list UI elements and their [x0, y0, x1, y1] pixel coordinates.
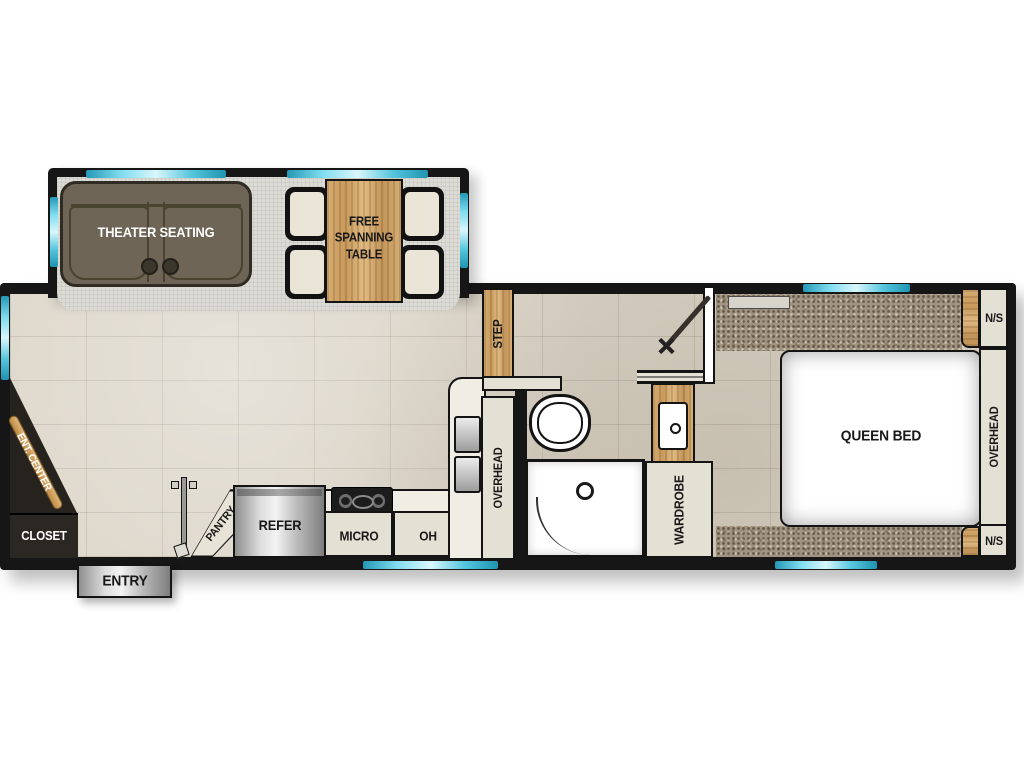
refer-label: REFER	[259, 517, 302, 533]
tv-pole-bracket-icon	[189, 481, 197, 489]
cupholder-icon	[162, 258, 179, 275]
sofa-seat-left	[69, 206, 149, 280]
entry-label: ENTRY	[102, 573, 147, 590]
cooktop-icon	[331, 487, 393, 513]
window-accent	[1, 296, 9, 380]
bedroom-overhead-label: OVERHEAD	[987, 406, 1001, 467]
dinette-bench	[400, 187, 444, 241]
window-accent	[460, 193, 468, 268]
window-accent	[803, 284, 910, 292]
bedroom-carpet-bottom	[716, 526, 962, 557]
bathroom-sink-icon	[658, 402, 688, 450]
window-accent	[86, 170, 226, 178]
dinette-bench	[400, 245, 444, 299]
nightstand-bottom-label: N/S	[985, 534, 1003, 548]
cupholder-icon	[141, 258, 158, 275]
kitchen-sink-icon	[454, 456, 481, 493]
nightstand-wood-trim	[961, 526, 980, 557]
oh-label: OH	[419, 529, 437, 544]
wardrobe-label: WARDROBE	[672, 475, 687, 545]
queen-bed-label: QUEEN BED	[841, 428, 921, 445]
closet-label: CLOSET	[21, 529, 67, 543]
window-accent	[363, 561, 498, 569]
toilet-icon	[529, 394, 591, 452]
window-accent	[50, 197, 58, 267]
shower-curtain-line	[536, 497, 598, 555]
step-label: STEP	[491, 319, 505, 348]
dinette-bench	[285, 245, 329, 299]
window-accent	[287, 170, 428, 178]
window-accent	[775, 561, 877, 569]
rv-floorplan: THEATER SEATING FREE SPANNING TABLE ENT.…	[0, 0, 1024, 768]
nightstand-wood-trim	[961, 288, 980, 348]
tv-pole-bracket-icon	[171, 481, 179, 489]
dinette-bench	[285, 187, 329, 241]
free-spanning-table-label: FREE SPANNING TABLE	[331, 214, 397, 263]
tv-pole-icon	[181, 477, 187, 551]
shower	[525, 459, 645, 558]
bedroom-slide-step	[728, 296, 790, 309]
nightstand-top-label: N/S	[985, 311, 1003, 325]
kitchen-overhead-label: OVERHEAD	[491, 447, 505, 508]
theater-seating-label: THEATER SEATING	[98, 224, 215, 240]
shower-drain-icon	[576, 482, 594, 500]
bathroom-half-wall-shelf	[482, 376, 562, 391]
kitchen-sink-icon	[454, 416, 481, 453]
micro-label: MICRO	[340, 529, 379, 544]
